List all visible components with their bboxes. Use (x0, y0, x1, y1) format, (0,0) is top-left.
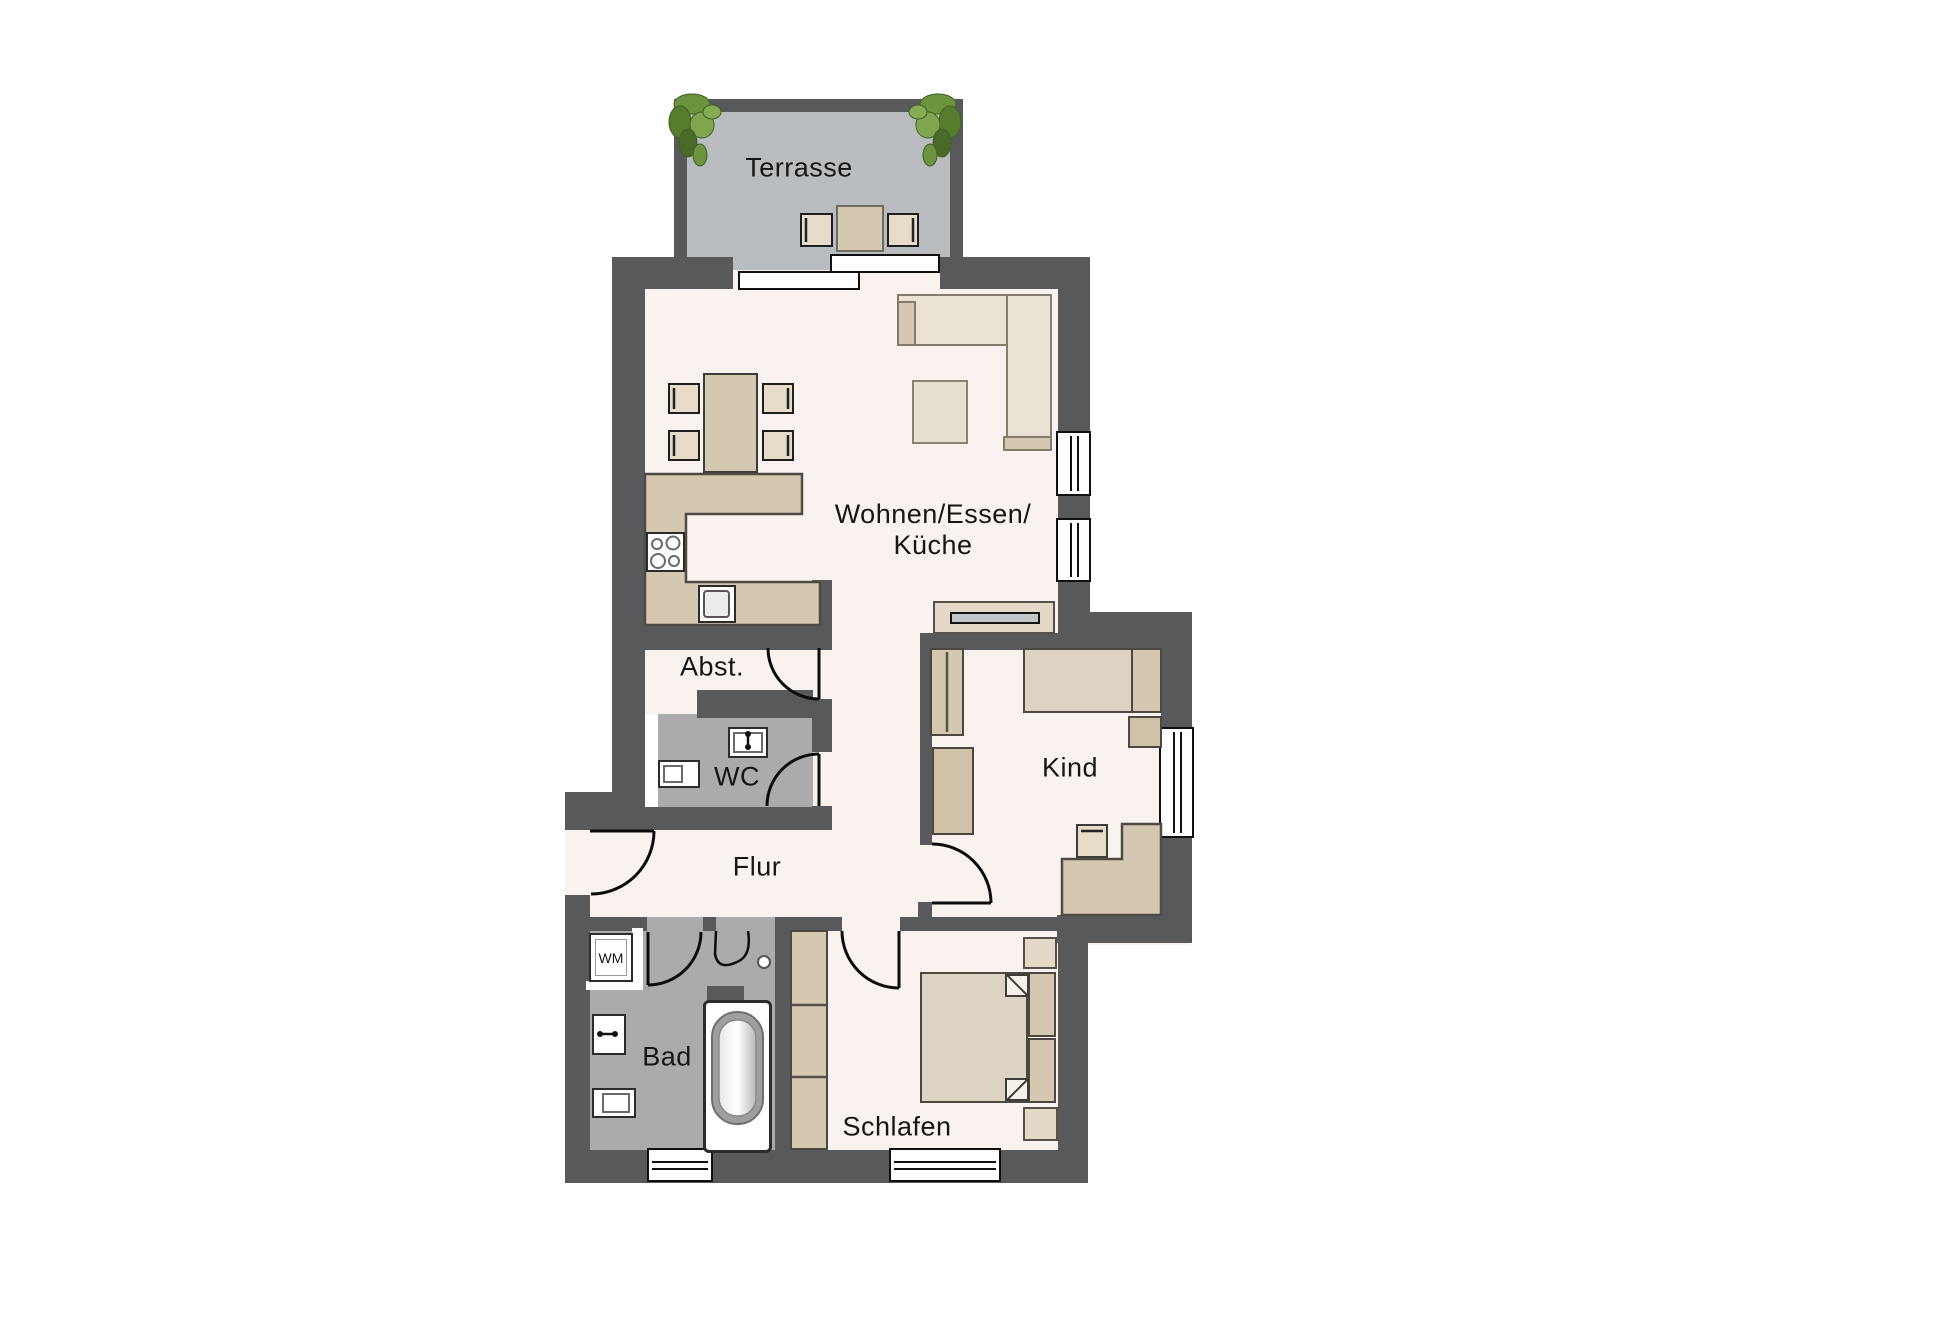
burner-icon (667, 537, 680, 550)
wc-sink-faucet-icon (745, 731, 751, 750)
room-label-living: Wohnen/Essen/ Küche (835, 499, 1032, 561)
wc-door-swing (767, 754, 819, 806)
plant (909, 94, 961, 166)
bedroom-door-swing (842, 931, 899, 988)
room-label-terrace: Terrasse (745, 153, 853, 184)
shower-folding-door (715, 931, 749, 965)
burner-icon (651, 554, 665, 568)
bath-door-swing (648, 932, 701, 985)
plan-overlay (0, 0, 1934, 1324)
burner-icon (652, 539, 662, 549)
room-label-living-line1: Wohnen/Essen/ (835, 499, 1032, 530)
room-label-bath: Bad (642, 1042, 692, 1073)
kitchen-sink-basin (704, 591, 729, 617)
desk (1062, 824, 1161, 915)
bath-sink-faucet-icon (597, 1031, 618, 1037)
floor-plan-canvas: KS WM (0, 0, 1934, 1324)
bathtub-basin (719, 1020, 756, 1116)
room-label-storage: Abst. (680, 652, 744, 683)
storage-door-swing (768, 648, 819, 699)
room-label-wc: WC (714, 762, 760, 793)
room-label-living-line2: Küche (835, 530, 1032, 561)
entrance-door-swing (590, 831, 654, 894)
burner-icon (669, 556, 679, 566)
plant (669, 94, 721, 166)
room-label-hall: Flur (733, 852, 782, 883)
room-label-bedroom: Schlafen (842, 1112, 951, 1143)
wardrobe-division-lines (791, 652, 947, 1077)
pillow-fold-lines (1007, 975, 1028, 1100)
child-door-swing (932, 844, 991, 903)
shower-drain-icon (758, 956, 770, 968)
room-label-child: Kind (1042, 753, 1098, 784)
